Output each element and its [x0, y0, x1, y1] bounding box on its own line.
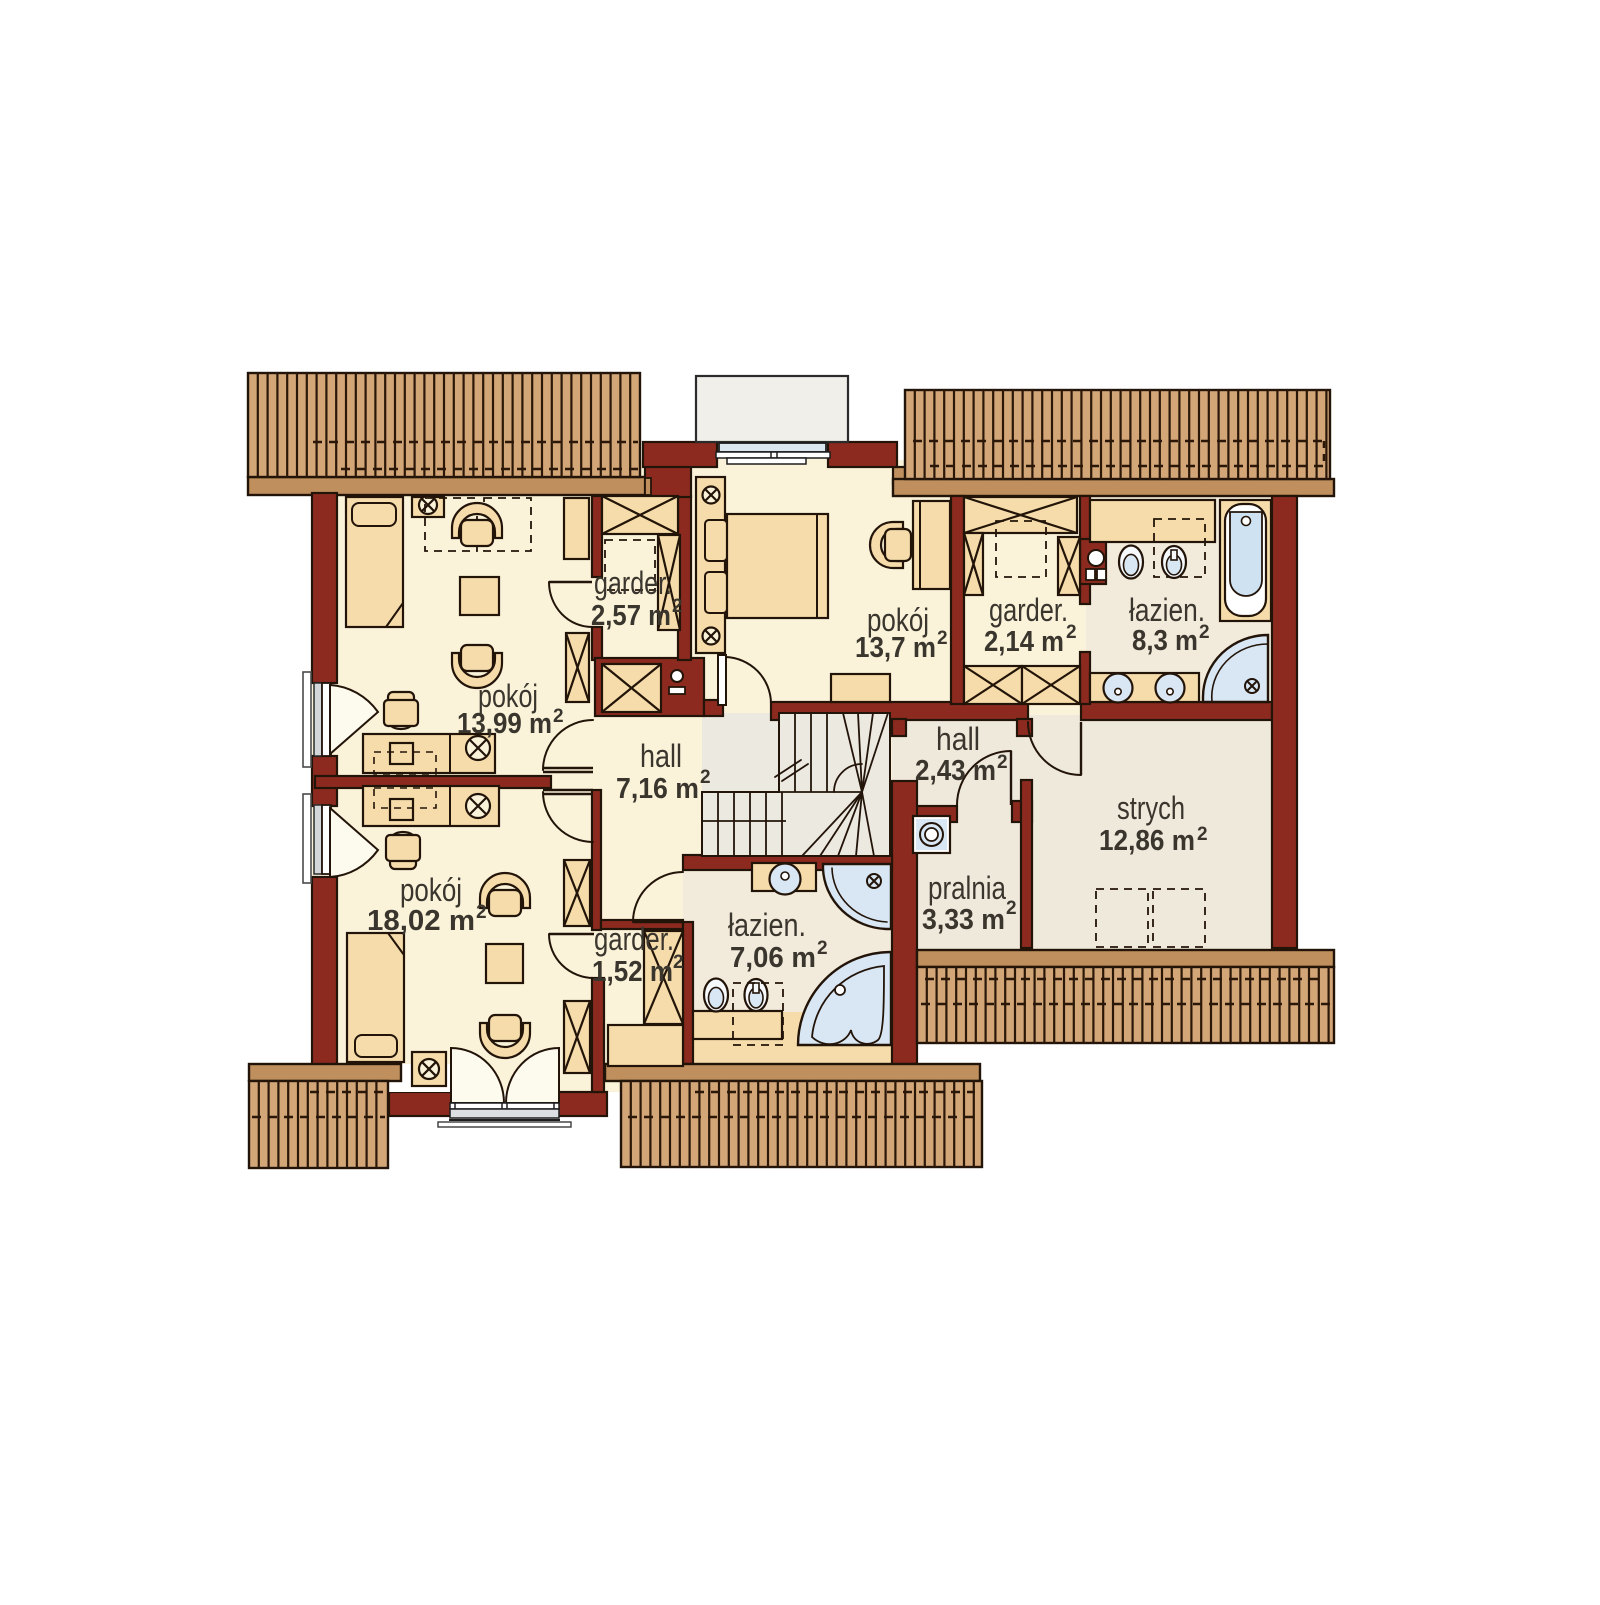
svg-text:2,57 m: 2,57 m: [591, 600, 671, 632]
svg-text:2: 2: [997, 752, 1008, 773]
svg-text:2: 2: [673, 952, 684, 973]
svg-text:2: 2: [1006, 898, 1017, 919]
svg-text:garder.: garder.: [594, 565, 672, 601]
svg-text:3,33 m: 3,33 m: [922, 904, 1005, 936]
svg-text:2: 2: [1199, 622, 1210, 643]
svg-text:7,06 m: 7,06 m: [730, 942, 816, 974]
svg-text:2,43 m: 2,43 m: [915, 755, 996, 787]
svg-text:2: 2: [672, 596, 683, 617]
svg-text:łazien.: łazien.: [728, 907, 806, 943]
svg-text:2: 2: [937, 628, 948, 649]
svg-text:pralnia: pralnia: [928, 870, 1006, 906]
svg-text:13,99 m: 13,99 m: [457, 708, 552, 740]
svg-text:2: 2: [553, 706, 564, 727]
svg-text:hall: hall: [640, 738, 682, 774]
svg-text:2,14 m: 2,14 m: [984, 626, 1064, 658]
svg-text:1,52 m: 1,52 m: [592, 956, 673, 988]
svg-text:pokój: pokój: [400, 872, 462, 908]
svg-text:strych: strych: [1117, 790, 1185, 826]
svg-text:2: 2: [1066, 622, 1077, 643]
svg-text:7,16 m: 7,16 m: [616, 773, 699, 805]
svg-text:2: 2: [700, 767, 711, 788]
svg-text:hall: hall: [936, 721, 980, 757]
svg-text:13,7 m: 13,7 m: [855, 632, 936, 664]
svg-text:18,02 m: 18,02 m: [367, 905, 475, 937]
svg-text:2: 2: [817, 938, 828, 959]
svg-text:12,86 m: 12,86 m: [1099, 825, 1195, 857]
svg-text:8,3 m: 8,3 m: [1132, 625, 1198, 657]
svg-text:garder.: garder.: [989, 592, 1068, 628]
svg-text:2: 2: [1197, 824, 1208, 845]
svg-text:garder.: garder.: [594, 921, 674, 957]
svg-text:łazien.: łazien.: [1129, 592, 1205, 628]
svg-text:2: 2: [476, 902, 487, 923]
